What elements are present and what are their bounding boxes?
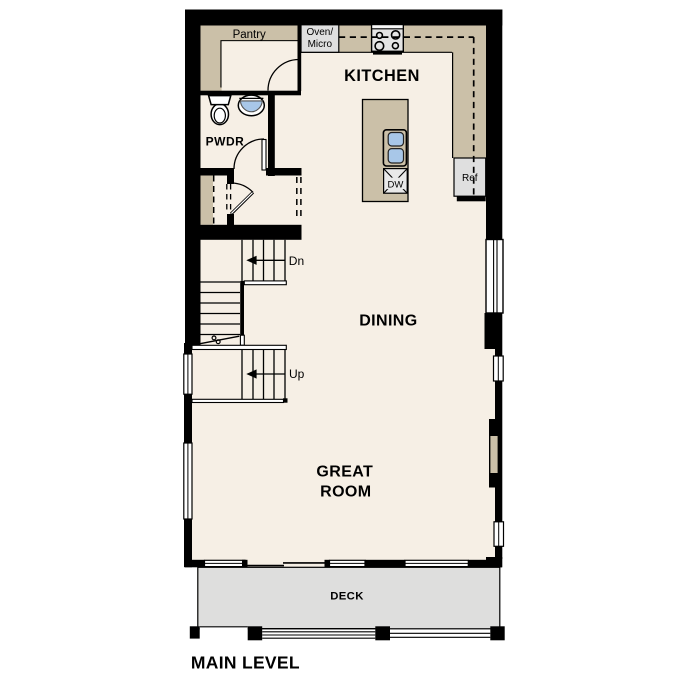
svg-text:DINING: DINING	[359, 313, 417, 330]
svg-text:Up: Up	[289, 367, 305, 381]
svg-text:GREAT: GREAT	[316, 464, 373, 481]
svg-text:Ref: Ref	[462, 173, 478, 184]
svg-text:DECK: DECK	[330, 590, 364, 602]
svg-text:Pantry: Pantry	[233, 29, 266, 41]
svg-text:MAIN LEVEL: MAIN LEVEL	[191, 653, 300, 673]
svg-text:ROOM: ROOM	[320, 484, 371, 501]
svg-text:Micro: Micro	[308, 39, 333, 50]
svg-text:PWDR: PWDR	[206, 135, 245, 149]
svg-text:Dn: Dn	[289, 254, 304, 268]
svg-text:KITCHEN: KITCHEN	[344, 67, 420, 85]
svg-text:Oven/: Oven/	[306, 27, 333, 38]
svg-text:DW: DW	[387, 180, 403, 191]
